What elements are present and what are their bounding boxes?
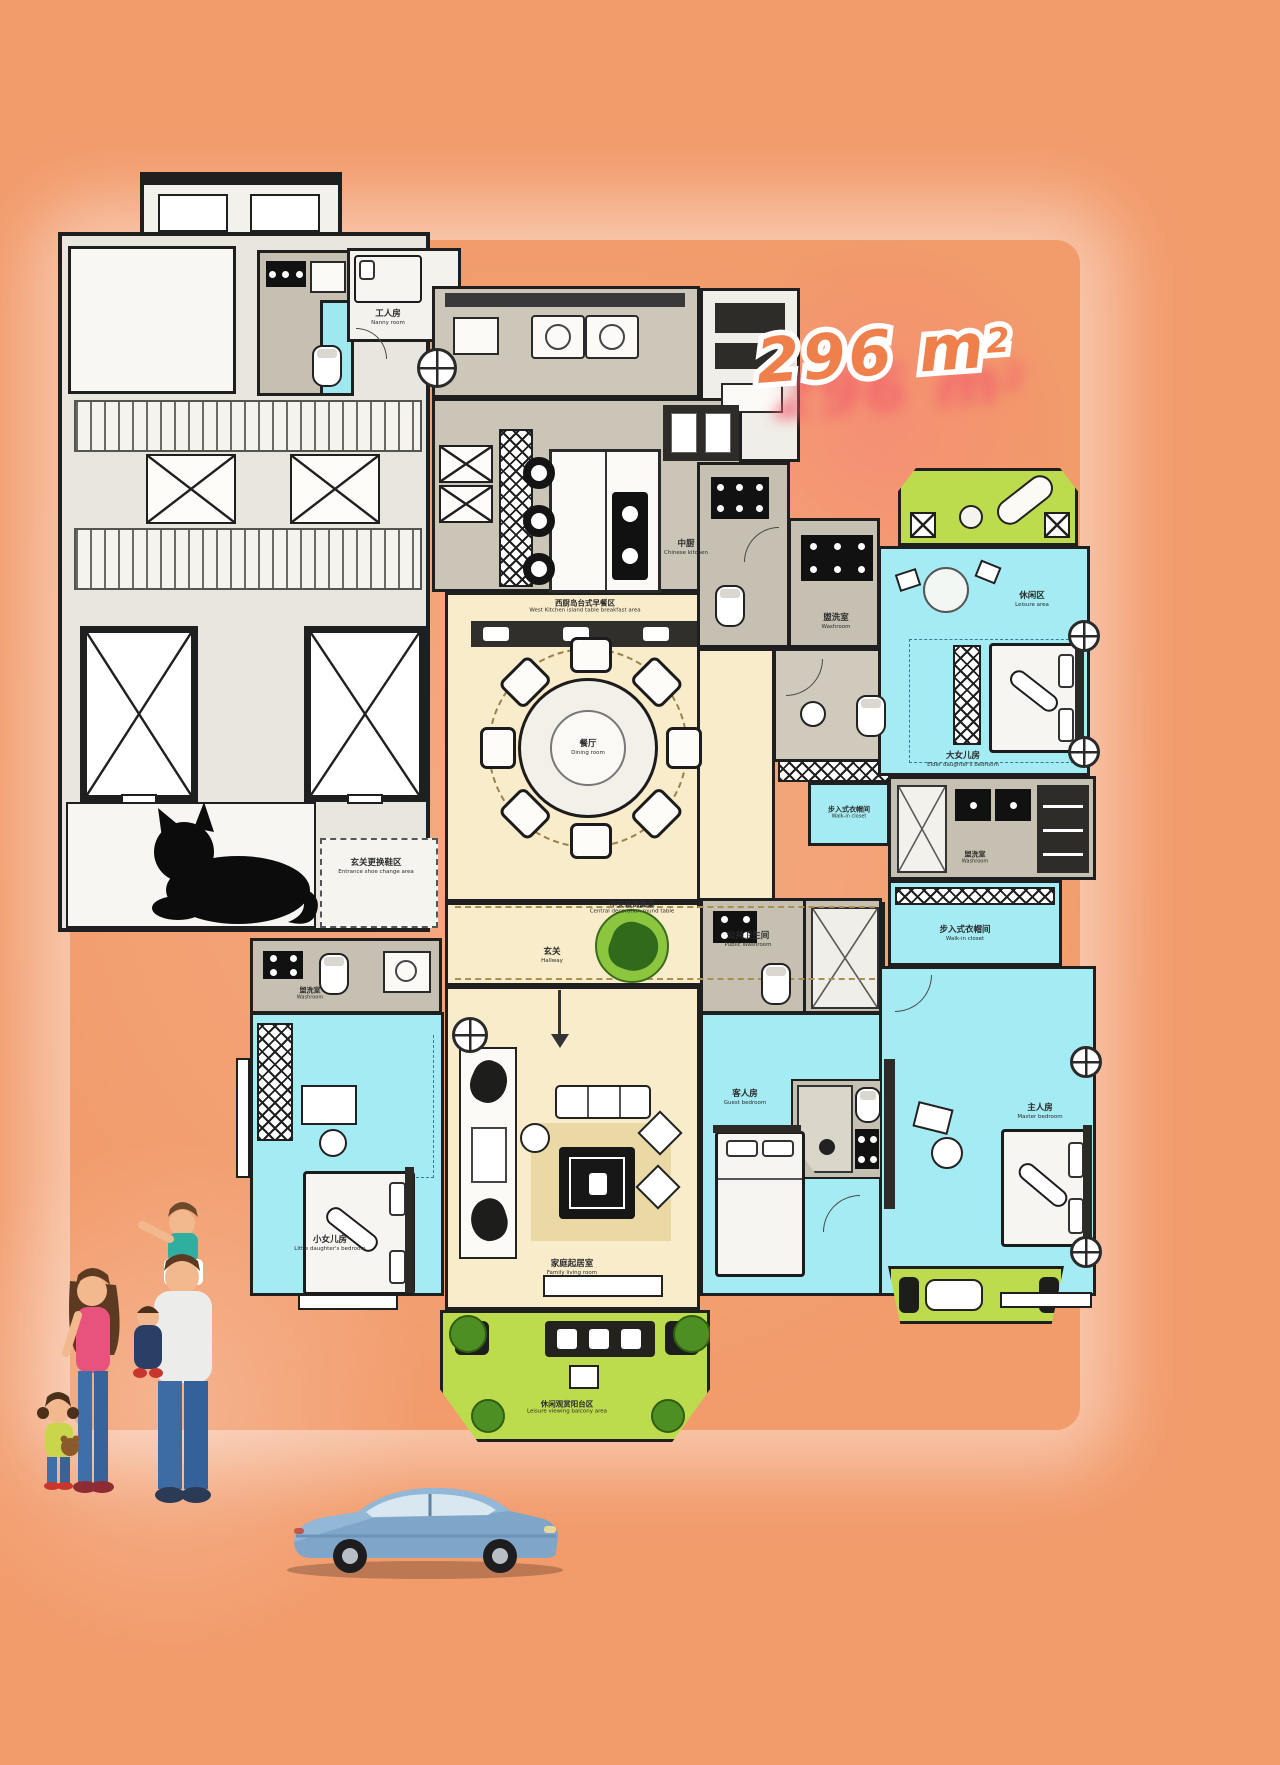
direction-arrow [558, 990, 561, 1034]
dining-room-label: 餐厅 Dining room [571, 740, 605, 756]
coffee-table [559, 1147, 635, 1219]
little-bay-window-left [236, 1058, 250, 1178]
shoe-change-zone [320, 838, 438, 928]
breakfast-area-label: 西厨岛台式早餐区 West Kitchen island table break… [529, 600, 640, 615]
stair-flight-upper [74, 400, 422, 452]
tv-wall [884, 1059, 895, 1209]
storage-room [68, 246, 236, 394]
balcony-table [569, 1365, 599, 1389]
small-desk [912, 1101, 953, 1135]
little-bay-window-bottom [298, 1294, 398, 1310]
mom [66, 1268, 120, 1493]
little-daughter-bedroom-label: 小女儿房 Little daughter's bedroom [294, 1236, 365, 1252]
master-bay-window [1000, 1292, 1092, 1308]
floor-lamp [520, 1123, 550, 1153]
hallway-label: 玄关 Hallway [541, 948, 563, 964]
sink-unit [453, 317, 499, 355]
stair-flight-lower [74, 528, 422, 590]
walk-in-closet-2 [888, 880, 1062, 966]
chinese-kitchen [432, 398, 742, 592]
master-bedroom-label: 主人房 Master bedroom [1017, 1104, 1062, 1120]
central-table-label: 中央装饰圆桌 Central decoration round table [590, 901, 675, 916]
leisure-area-label: 休闲区 Leisure area [1015, 592, 1049, 608]
planter-tub [925, 1279, 983, 1311]
walk-in-closet-1-label: 步入式衣帽间 Walk-in closet [828, 806, 870, 819]
leisure-rug [923, 567, 969, 613]
walk-in-closet-2-label: 步入式衣帽间 Walk-in closet [939, 926, 990, 942]
little-girl [37, 1392, 80, 1490]
nanny-room-label: 工人房 Nanny room [371, 310, 405, 326]
balcony-bench [545, 1321, 655, 1357]
stair-void-right [290, 454, 380, 524]
master-washroom-label: 盥洗室 Washroom [962, 851, 988, 864]
elder-daughter-bedroom [878, 546, 1090, 776]
media-console [543, 1275, 663, 1297]
washer-icon [531, 315, 585, 359]
stove-icon [612, 492, 648, 580]
shower-stall [897, 785, 947, 873]
guest-bedroom-label: 客人房 Guest bedroom [724, 1090, 767, 1106]
elevator-shaft-2 [304, 626, 426, 802]
laundry-area [432, 286, 700, 398]
car-illustration [282, 1470, 568, 1582]
leisure-chair-1 [895, 568, 921, 592]
washroom-top-label: 盥洗室 Washroom [821, 614, 850, 630]
floorplan-poster: 296 m2 296 m2 296 m2 [0, 0, 1280, 1765]
master-bed [1001, 1129, 1091, 1247]
tv-console [459, 1047, 517, 1259]
kitchen-island [549, 449, 661, 593]
public-shower [811, 907, 879, 1009]
elder-daughter-bedroom-label: 大女儿房 Elder daughter's bedroom [927, 752, 999, 768]
elevator-shaft-1 [80, 626, 198, 802]
fridge-unit [663, 405, 739, 461]
side-table [959, 505, 983, 529]
family-living-room-label: 家庭起居室 Family living room [547, 1260, 597, 1276]
ceiling-light-icon [417, 348, 457, 388]
mid-bathroom [773, 648, 890, 762]
dryer-icon [585, 315, 639, 359]
chinese-kitchen-label: 中厨 Chinese kitchen [664, 540, 708, 556]
master-washroom [888, 776, 1096, 880]
reading-chair [931, 1137, 963, 1169]
dad [154, 1254, 212, 1503]
master-bedroom [878, 966, 1096, 1296]
little-washroom-label: 盥洗室 Washroom [297, 987, 323, 1000]
public-washroom-label: 公共卫生间 Public Washroom [724, 932, 771, 948]
little-washroom [250, 938, 442, 1014]
cat-silhouette [138, 790, 324, 932]
decor-round-table [595, 909, 669, 983]
little-wardrobe [257, 1023, 293, 1141]
leisure-balcony-bottom [440, 1310, 710, 1442]
little-bed [303, 1171, 415, 1295]
entrance-shoe-area-label: 玄关更换鞋区 Entrance shoe change area [338, 859, 414, 875]
stair-void-left [146, 454, 236, 524]
little-daughter-bedroom [250, 1012, 444, 1296]
leisure-chair-2 [974, 560, 1001, 585]
leisure-balcony-label: 休闲观赏阳台区 Leisure viewing balcony area [527, 1401, 607, 1416]
ensuite-shower [797, 1085, 853, 1173]
public-washroom [700, 898, 882, 1014]
washroom-top-a [697, 462, 790, 648]
guest-bedroom [700, 1012, 882, 1296]
elder-bed [989, 643, 1081, 753]
family-illustration [30, 1185, 242, 1577]
sofa [555, 1085, 651, 1119]
bath-wardrobe [1037, 785, 1089, 873]
direction-arrow-head [551, 1034, 569, 1048]
guest-bed [715, 1131, 805, 1277]
bedroom-corridor [697, 648, 775, 908]
wardrobe-strip [778, 760, 890, 782]
